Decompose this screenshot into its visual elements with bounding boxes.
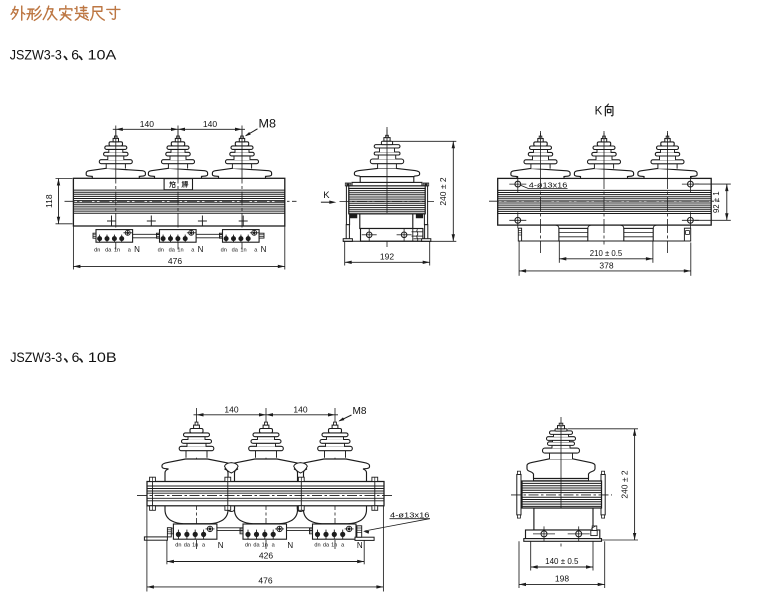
- svg-text:198: 198: [555, 573, 569, 583]
- svg-text:1n: 1n: [114, 247, 120, 253]
- svg-text:1n: 1n: [262, 543, 268, 549]
- svg-text:426: 426: [259, 551, 273, 561]
- svg-text:476: 476: [168, 256, 182, 266]
- svg-text:92 ± 1: 92 ± 1: [712, 191, 721, 213]
- svg-text:140 ± 0.5: 140 ± 0.5: [545, 557, 579, 566]
- svg-text:M8: M8: [259, 119, 277, 131]
- svg-text:378: 378: [599, 260, 613, 270]
- svg-text:N: N: [218, 541, 224, 550]
- svg-text:da: da: [323, 543, 330, 549]
- svg-text:dn: dn: [158, 247, 164, 253]
- svg-text:240 ± 2: 240 ± 2: [620, 470, 630, 499]
- svg-text:JSZW3-3: JSZW3-3: [10, 47, 62, 63]
- svg-text:dn: dn: [175, 543, 181, 549]
- svg-text:N: N: [357, 541, 363, 550]
- svg-text:da: da: [253, 543, 260, 549]
- svg-text:210 ± 0.5: 210 ± 0.5: [590, 249, 623, 258]
- svg-text:118: 118: [44, 194, 54, 208]
- svg-text:140: 140: [224, 404, 238, 414]
- svg-text:dn: dn: [94, 247, 100, 253]
- svg-text:dn: dn: [314, 543, 320, 549]
- svg-text:140: 140: [140, 119, 154, 129]
- svg-text:1n: 1n: [331, 543, 337, 549]
- svg-text:K: K: [595, 106, 603, 118]
- svg-text:da: da: [232, 247, 239, 253]
- svg-text:1n: 1n: [192, 543, 198, 549]
- svg-text:da: da: [184, 543, 191, 549]
- svg-text:1n: 1n: [177, 247, 183, 253]
- svg-text:N: N: [261, 245, 267, 254]
- svg-text:476: 476: [258, 576, 272, 586]
- svg-text:K: K: [323, 190, 330, 201]
- svg-text:192: 192: [380, 252, 394, 262]
- svg-text:da: da: [169, 247, 176, 253]
- svg-text:10A: 10A: [88, 47, 118, 63]
- svg-text:140: 140: [293, 404, 307, 414]
- svg-text:dn: dn: [245, 543, 251, 549]
- svg-text:da: da: [105, 247, 112, 253]
- svg-text:JSZW3-3: JSZW3-3: [10, 349, 62, 365]
- svg-text:N: N: [198, 245, 204, 254]
- svg-text:6: 6: [71, 47, 79, 63]
- svg-text:240 ± 2: 240 ± 2: [438, 177, 448, 206]
- svg-text:N: N: [134, 245, 140, 254]
- svg-text:M8: M8: [353, 405, 367, 417]
- svg-text:N: N: [287, 541, 293, 550]
- svg-text:10B: 10B: [88, 349, 117, 365]
- svg-text:140: 140: [203, 119, 217, 129]
- svg-text:dn: dn: [221, 247, 227, 253]
- svg-text:6: 6: [72, 349, 80, 365]
- svg-text:1n: 1n: [240, 247, 246, 253]
